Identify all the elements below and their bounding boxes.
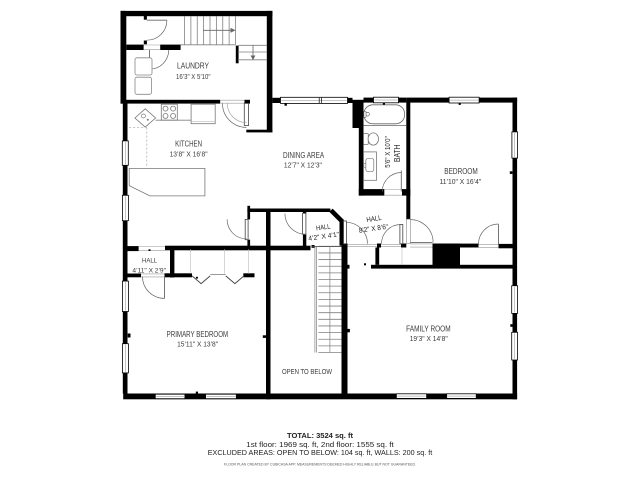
- svg-text:TOTAL: 3524 sq. ft: TOTAL: 3524 sq. ft: [287, 431, 353, 440]
- svg-text:BATH: BATH: [393, 145, 402, 163]
- svg-text:4’11" X 2’9": 4’11" X 2’9": [132, 267, 166, 274]
- svg-text:16’3" X 5’10": 16’3" X 5’10": [176, 72, 211, 81]
- svg-text:12’7" X 12’3": 12’7" X 12’3": [284, 161, 322, 170]
- svg-text:19’3" X 14’8": 19’3" X 14’8": [410, 334, 448, 343]
- svg-text:13’8" X 16’8": 13’8" X 16’8": [170, 149, 208, 158]
- svg-text:LAUNDRY: LAUNDRY: [177, 61, 210, 70]
- svg-text:OPEN TO BELOW: OPEN TO BELOW: [282, 367, 332, 376]
- svg-text:FLOOR PLAN CREATED BY CUBICASA: FLOOR PLAN CREATED BY CUBICASA APP. MEAS…: [224, 462, 416, 466]
- svg-text:5’6" X 10’0": 5’6" X 10’0": [383, 136, 392, 168]
- svg-text:11’10" X 16’4": 11’10" X 16’4": [440, 177, 482, 186]
- svg-text:FAMILY ROOM: FAMILY ROOM: [406, 325, 451, 334]
- svg-text:PRIMARY BEDROOM: PRIMARY BEDROOM: [167, 330, 229, 339]
- svg-text:EXCLUDED AREAS: OPEN TO BELOW:: EXCLUDED AREAS: OPEN TO BELOW: 104 sq. f…: [208, 448, 433, 457]
- svg-text:BEDROOM: BEDROOM: [444, 167, 478, 176]
- svg-text:HALL: HALL: [142, 258, 157, 265]
- svg-text:KITCHEN: KITCHEN: [175, 139, 202, 148]
- svg-text:15’11" X 13’8": 15’11" X 13’8": [177, 339, 218, 348]
- svg-text:DINING AREA: DINING AREA: [283, 151, 325, 160]
